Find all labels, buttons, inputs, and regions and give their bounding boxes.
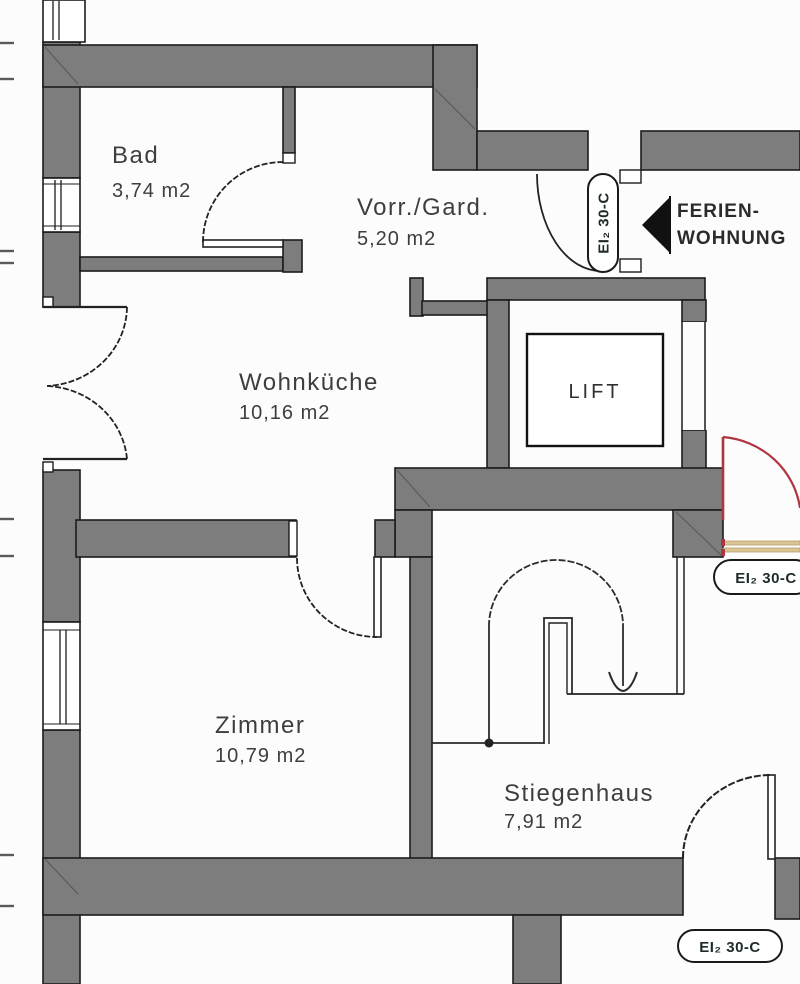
window-frame [43,0,85,42]
lift-shaft-wall-right [682,430,706,470]
door-jamb [620,170,641,183]
room-name: Stiegenhaus [504,780,654,807]
room-area: 3,74 m2 [112,180,191,202]
wall-bad-divider [283,87,295,153]
lift-label: LIFT [568,381,621,403]
window-bad [43,178,80,232]
lift-shaft-wall-top [487,278,705,300]
fire-rating-text: EI₂ 30-C [699,939,761,956]
red-door-jamb-mark [721,549,725,556]
lift-shaft-wall-right [682,300,706,322]
room-name: Bad [112,142,159,169]
wall-bad-bottom [80,257,283,271]
wall-stub [410,278,423,316]
room-area: 10,16 m2 [239,402,330,424]
wall-bottom [43,858,683,915]
room-name: Vorr./Gard. [357,194,490,221]
wall-end-cap [283,153,295,163]
fire-rating-text: EI₂ 30-C [596,192,613,254]
floor-plan-drawing: LIFT [0,0,800,984]
wall-zimmer-top [76,520,296,557]
door-leaf [768,775,775,859]
window-zimmer [43,622,80,730]
door-jamb [43,462,53,472]
wall-middle-junction [395,510,432,557]
wall-zimmer-stair-divider [410,557,432,860]
wall-stub [422,301,488,315]
lift-door-opening [680,322,708,430]
door-post [283,240,302,272]
door-leaf [203,240,283,247]
door-jamb [620,259,641,272]
wall [43,470,80,622]
fire-rating-label-vertical: EI₂ 30-C [588,174,618,272]
wall [43,730,80,984]
wall [43,232,80,307]
ferienwohnung-label-line1: FERIEN- [677,201,760,222]
door-leaf [374,557,381,637]
room-area: 5,20 m2 [357,228,436,250]
wall-bottom-right [775,858,800,919]
room-name: Zimmer [215,712,305,739]
floor-plan-page: LIFT [0,0,800,984]
threshold-line [723,541,800,545]
wall-top-right [477,131,588,170]
fire-rating-label-middle: EI₂ 30-C [714,560,800,594]
wall-top [43,45,477,87]
fire-rating-label-bottom: EI₂ 30-C [678,930,782,962]
room-area: 10,79 m2 [215,745,306,767]
lift-shaft: LIFT [527,322,708,446]
wall-middle [395,468,723,510]
room-area: 7,91 m2 [504,811,583,833]
wall-bottom-stub [513,915,561,984]
door-jamb [43,297,53,307]
wall-middle-step [375,520,395,557]
fire-rating-text: EI₂ 30-C [735,570,797,587]
room-name: Wohnküche [239,369,379,396]
wall-step [433,45,477,170]
lift-shaft-wall-left [487,300,509,468]
window-top [43,0,85,42]
window-frame [43,622,80,730]
wall-top-right [641,131,800,170]
door-jamb [289,521,297,556]
ferienwohnung-label-line2: WOHNUNG [677,228,786,249]
red-door-jamb-mark [721,539,725,546]
threshold-line [723,548,800,552]
